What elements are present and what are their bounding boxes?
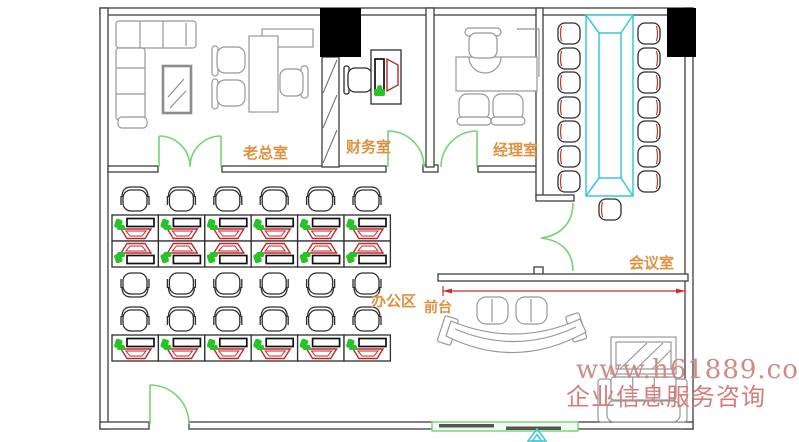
workstation-desk [158,241,204,267]
wall-top [100,8,693,15]
dimension-line [443,286,685,296]
office-chair [121,273,149,297]
watermark-url: www.h61889.com [576,355,799,385]
office-chair [260,307,288,331]
meeting-chair [638,171,660,192]
meeting-room: 会议室 [558,15,674,272]
meeting-chair [638,146,660,167]
office-chair [167,187,195,211]
meeting-chair [558,146,580,167]
meeting-chair [558,72,580,93]
wall-reception [438,274,688,281]
finance-room-door [388,131,424,167]
manager-room: 经理室 [456,28,539,159]
meeting-chair [558,121,580,142]
office-chair [214,307,242,331]
conference-table [586,15,633,196]
boss-desk [249,36,278,112]
reception-counter [437,312,587,352]
meeting-chair [638,121,660,142]
reception-stool [516,297,547,324]
office-chair [353,307,381,331]
watermark-caption: 企业信息服务咨询 [566,383,766,411]
finance-room: 财务室 [344,50,401,156]
workstation-desk [205,215,251,241]
room-label-finance: 财务室 [346,138,391,156]
room-label-manager: 经理室 [493,141,538,159]
executive-chair [280,66,308,98]
office-chair [307,187,335,211]
office-chair [307,307,335,331]
office-chair [167,273,195,297]
column-left [320,8,361,57]
wall-bottom-mid [189,422,433,429]
office-chair [214,187,242,211]
meeting-chair [558,48,580,69]
boss-office: 老总室 [116,21,313,162]
workstation-desk [344,241,390,267]
wall-meeting-jog [536,195,574,201]
floor-plan-canvas: 老总室 财务室 经理室 [0,0,799,442]
wall-rooms-a [108,166,158,172]
workstation-desk [158,215,204,241]
office-chair [121,187,149,211]
wall-rooms-c [478,166,540,172]
workstation-desk [205,335,251,361]
office-chair [214,273,242,297]
floor-plan: 老总室 财务室 经理室 [0,0,799,442]
meeting-chair [638,97,660,118]
room-label-reception: 前台 [424,299,452,316]
workstation-desk [112,215,158,241]
reception-stool [477,297,508,324]
wall-rooms-b [222,166,386,172]
workstation-desk [344,215,390,241]
wall-boss-finance [322,57,339,167]
wall-finance-manager [426,8,434,167]
workstation-desk [298,241,344,267]
workstation-desk [298,335,344,361]
watermark: www.h61889.com 企业信息服务咨询 [566,355,799,411]
office-chair [344,66,372,94]
manager-desk [456,57,537,91]
wall-left [100,8,108,429]
workstation-desk [298,215,344,241]
meeting-chair [638,72,660,93]
room-label-boss: 老总室 [242,144,288,162]
wall-bottom-right [577,422,693,429]
column-right [667,8,696,57]
room-label-office-area: 办公区 [371,292,416,310]
boss-office-double-door [159,136,221,167]
side-entry-door [150,385,189,424]
guest-chair [457,94,491,125]
boss-desk-set [212,29,313,112]
meeting-chair [638,23,660,44]
office-chair [167,307,195,331]
workstation-desk [158,335,204,361]
office-chair [307,273,335,297]
wall-bottom-left [100,422,149,429]
meeting-chair [558,97,580,118]
meeting-chair [558,171,580,192]
guest-chair [491,94,525,125]
room-label-meeting: 会议室 [629,254,674,272]
office-chair [260,187,288,211]
meeting-chair [599,199,621,220]
workstation-desk [251,241,297,267]
office-chair [121,307,149,331]
workstation-desk [205,241,251,267]
sliding-entrance-door [432,422,578,431]
workstation-desk [344,335,390,361]
meeting-chair [638,48,660,69]
guest-chair [212,46,245,76]
meeting-chair [558,23,580,44]
meeting-room-double-door [541,203,573,271]
guest-chair [212,79,245,109]
manager-room-door [441,131,477,167]
open-office-area: 办公区 [112,187,416,361]
workstation-desk [112,241,158,267]
monitor-icon [387,59,398,91]
workstation-desk [251,215,297,241]
office-chair [260,273,288,297]
workstation-desk [112,335,158,361]
glass-coffee-table [163,66,191,113]
executive-chair [465,28,501,58]
workstation-desk [251,335,297,361]
office-chair [353,187,381,211]
